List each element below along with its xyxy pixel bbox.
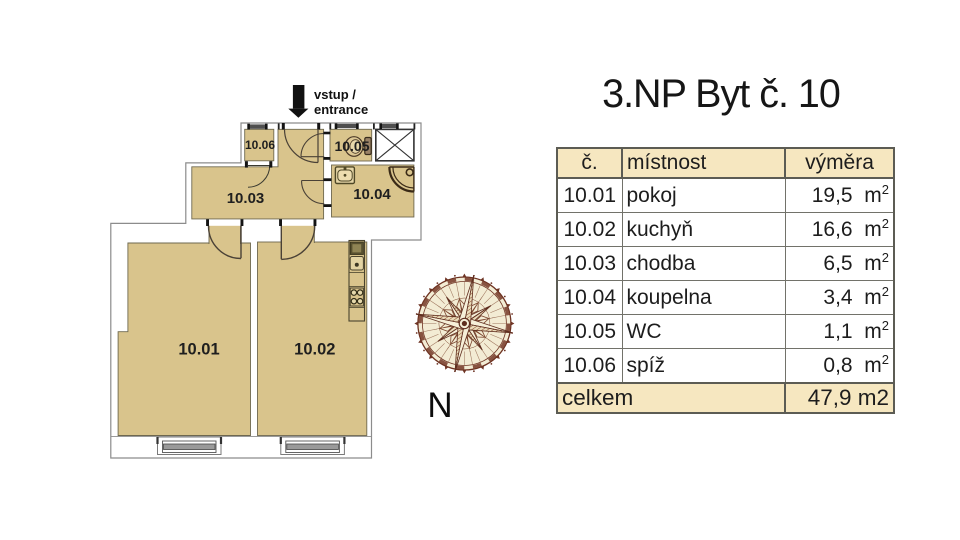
svg-text:10.04: 10.04 <box>353 186 391 203</box>
svg-text:10.03: 10.03 <box>227 190 265 207</box>
svg-text:10.06: 10.06 <box>245 138 275 152</box>
svg-text:10.05: 10.05 <box>334 138 369 154</box>
svg-text:entrance: entrance <box>314 102 368 117</box>
svg-text:N: N <box>427 386 452 425</box>
svg-text:vstup /: vstup / <box>314 87 356 102</box>
svg-text:10.01: 10.01 <box>178 341 219 359</box>
svg-text:10.02: 10.02 <box>294 341 335 359</box>
